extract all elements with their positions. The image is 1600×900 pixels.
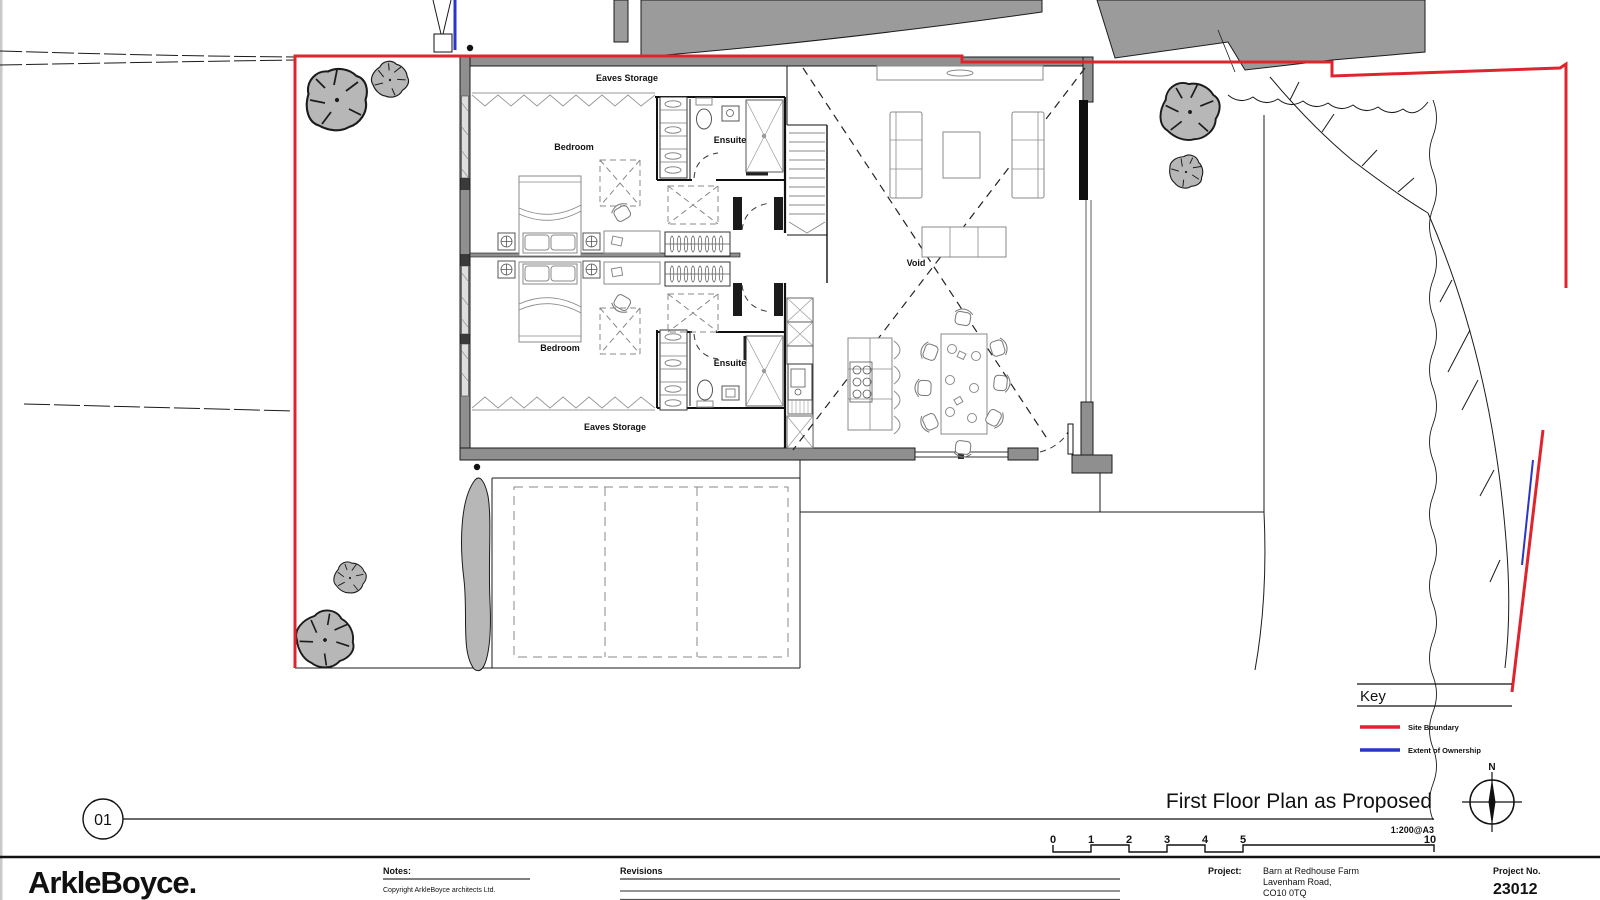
hedge-line-vertical [1430,100,1437,820]
window-frame-dark [1079,100,1088,200]
road-line [24,404,295,411]
wardrobe [660,97,687,178]
logo: ArkleBoyce. [28,865,196,900]
scale-tick: 3 [1164,834,1170,846]
room-label-void: Void [907,258,926,268]
ensuite-bottom [660,330,783,410]
tree-canopy-line [1428,213,1509,668]
kitchen-units [787,298,813,448]
drawing-title: First Floor Plan as Proposed [1166,790,1432,813]
hall-walls [733,197,783,316]
scale-tick: 2 [1126,834,1132,846]
wall-bottom [460,448,915,460]
tree-canopy-line [1270,77,1428,213]
key-panel: Key Site Boundary Extent of Ownership [1357,684,1512,755]
room-label-ensuite-top: Ensuite [714,135,747,145]
hedge-line [1228,95,1428,113]
room-label-eaves-storage-top: Eaves Storage [596,73,658,83]
revisions-label: Revisions [620,866,663,876]
drawing-number: 01 [94,812,112,829]
neighbour-building [641,0,1042,57]
room-label-bedroom-bottom: Bedroom [540,343,580,353]
scale-bar-line [1053,845,1434,852]
footer-titleblock: ArkleBoyce. Notes: Copyright ArkleBoyce … [0,857,1600,900]
revisions-rows [620,891,1120,900]
project-label: Project: [1208,866,1242,876]
toilet-cistern [697,401,713,407]
floor-plan-canvas: Eaves Storage Bedroom Ensuite Bedroom En… [0,0,1600,900]
key-title: Key [1360,688,1386,705]
main-building: Eaves Storage Bedroom Ensuite Bedroom En… [460,57,1112,473]
door-leaf [1068,424,1073,454]
north-compass-icon: N [1462,762,1522,832]
survey-dot [467,45,473,51]
page-edge [0,0,3,900]
project-name: Barn at Redhouse Farm [1263,866,1359,876]
project-address-1: Lavenham Road, [1263,877,1332,887]
toilet [697,109,712,129]
key-label-ownership: Extent of Ownership [1408,746,1481,755]
project-no: 23012 [1493,881,1538,898]
project-no-label: Project No. [1493,866,1541,876]
wardrobe [660,330,687,410]
notes-label: Notes: [383,866,411,876]
branch-spikes [1440,280,1500,582]
outbuilding [434,34,452,52]
door-swing [694,334,718,359]
wall-bottom-segment [1008,448,1038,460]
void-area [793,66,1085,450]
scale-tick: 4 [1202,834,1209,846]
bench [922,227,1006,257]
mast [433,0,451,34]
door-swing [742,203,771,230]
door-swing [742,285,771,312]
toilet [698,380,713,400]
sink [722,386,739,400]
key-label-site-boundary: Site Boundary [1408,723,1460,732]
sofa [1012,112,1044,198]
road-line [0,60,295,65]
project-address-2: CO10 0TQ [1263,888,1307,898]
title-bar: 01 First Floor Plan as Proposed 1:200@A3… [83,762,1522,852]
window-right [1083,200,1093,402]
corner-pier [1081,402,1093,455]
toilet-cistern [696,98,712,105]
bedroom-bottom-furniture [498,261,600,342]
room-label-bedroom-top: Bedroom [554,142,594,152]
room-label-ensuite-bottom: Ensuite [714,358,747,368]
wall-right [1083,57,1093,102]
north-label: N [1488,762,1495,773]
bedroom-top-furniture [498,176,600,256]
scale-tick: 5 [1240,834,1246,846]
stair-direction-arrow [789,222,825,233]
room-label-eaves-storage-bottom: Eaves Storage [584,422,646,432]
coffee-table [943,132,980,178]
hedge [462,478,491,671]
door-swing [1040,428,1070,452]
branch-spikes [1290,82,1414,192]
door-swing [694,153,718,178]
survey-dot [474,464,480,470]
sink [722,106,739,121]
scale-tick: 10 [1424,834,1436,846]
scale-tick: 0 [1050,834,1056,846]
compass-needle [1489,779,1496,825]
carport-bays [605,487,697,657]
carport-dashed [514,487,788,657]
site-boundary-line [1512,430,1543,692]
scale-bar: 0 1 2 3 4 5 10 [1050,834,1436,852]
scale-tick: 1 [1088,834,1094,846]
staircase [789,133,825,233]
kitchen-dining [848,308,1011,458]
yard-outline [295,460,800,668]
road-line [0,51,295,57]
corner-pier-foot [1072,455,1112,473]
sofa [890,112,922,198]
dressing-area [604,201,730,316]
copyright-text: Copyright ArkleBoyce architects Ltd. [383,887,495,894]
neighbour-building [1097,0,1425,70]
neighbour-building [614,0,628,42]
